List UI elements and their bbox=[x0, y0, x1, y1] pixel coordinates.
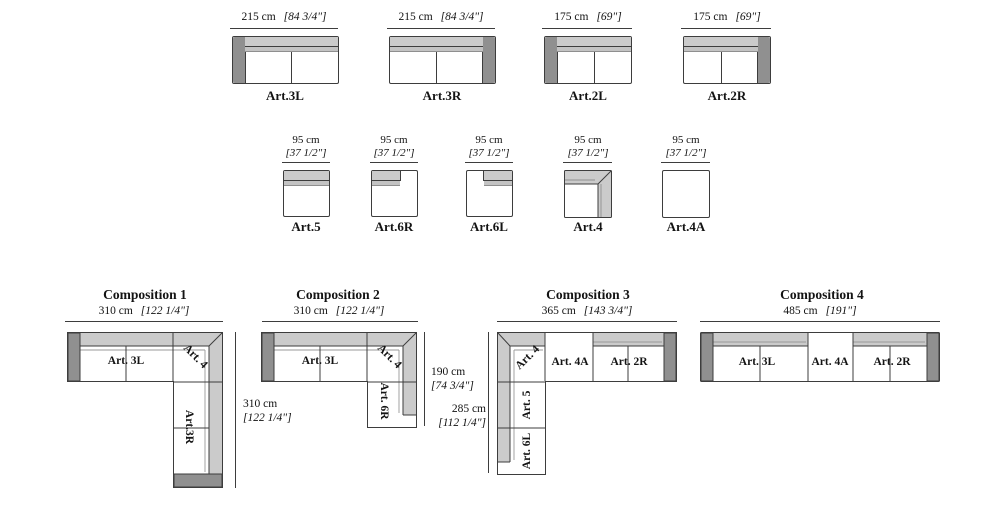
armrest-left bbox=[262, 333, 274, 381]
dim-cm: 310 cm bbox=[294, 305, 328, 317]
dim-line bbox=[681, 28, 771, 29]
composition3-diagram: Art. 4 Art. 4A Art. 2R Art. 5 Art. 6L bbox=[497, 332, 677, 475]
seat-divider bbox=[436, 52, 437, 83]
module-art5 bbox=[283, 170, 330, 217]
module-art4a bbox=[662, 170, 710, 218]
dim-in: [143 3/4"] bbox=[584, 305, 633, 317]
label-art4a: Art.4A bbox=[636, 219, 736, 235]
composition1-diagram: Art. 3L Art. 4 Art.3R bbox=[67, 332, 223, 488]
dim-art6r-in: [37 1/2"] bbox=[364, 147, 424, 159]
dim-line bbox=[65, 321, 223, 322]
backrest-band bbox=[245, 37, 338, 47]
dim-in: [69"] bbox=[596, 11, 621, 23]
label-art4a: Art. 4A bbox=[551, 356, 589, 368]
dim-art2l: 175 cm[69"] bbox=[528, 11, 648, 23]
backrest-strip bbox=[372, 181, 400, 186]
module-art4-corner bbox=[564, 170, 612, 218]
dim-line bbox=[700, 321, 940, 322]
armrest-right bbox=[482, 37, 495, 83]
dim-cm: 175 cm bbox=[554, 11, 588, 23]
label-art3l: Art. 3L bbox=[302, 355, 339, 367]
dim-art2r: 175 cm[69"] bbox=[667, 11, 787, 23]
dim-art3l: 215 cm[84 3/4"] bbox=[214, 11, 354, 23]
module-art3r bbox=[389, 36, 496, 84]
label-art6l: Art.6L bbox=[439, 219, 539, 235]
dim-line-vertical bbox=[488, 332, 489, 473]
band-stitch-line bbox=[565, 180, 601, 217]
composition3-title: Composition 3 bbox=[508, 287, 668, 303]
composition1-title: Composition 1 bbox=[65, 287, 225, 303]
label-art3l: Art. 3L bbox=[108, 355, 145, 367]
dim-line-vertical bbox=[235, 332, 236, 488]
dim-line bbox=[497, 321, 677, 322]
dim-in: [84 3/4"] bbox=[284, 11, 327, 23]
backrest-band bbox=[483, 171, 512, 181]
label-art4: Art.4 bbox=[538, 219, 638, 235]
dim-art4a-in: [37 1/2"] bbox=[656, 147, 716, 159]
dim-line bbox=[230, 28, 338, 29]
dim-cm: 310 cm bbox=[99, 305, 133, 317]
sofa-modules-dimension-sheet: 215 cm[84 3/4"] Art.3L 215 cm[84 3/4"] A… bbox=[0, 0, 990, 523]
module-art2l bbox=[544, 36, 632, 84]
label-art6r: Art.6R bbox=[344, 219, 444, 235]
backrest-strip bbox=[484, 181, 512, 186]
armrest-left bbox=[701, 333, 713, 381]
armrest-right bbox=[664, 333, 676, 381]
dim-art5-cm: 95 cm bbox=[276, 134, 336, 146]
dim-cm: 365 cm bbox=[542, 305, 576, 317]
dim-art4a-cm: 95 cm bbox=[656, 134, 716, 146]
label-art3r: Art.3R bbox=[183, 410, 195, 445]
label-art3l: Art.3L bbox=[235, 88, 335, 104]
label-art3r: Art.3R bbox=[392, 88, 492, 104]
band-inner-edge bbox=[565, 184, 598, 217]
composition2-dim-height-in: [74 3/4"] bbox=[431, 380, 474, 392]
label-art2r: Art. 2R bbox=[873, 356, 911, 368]
dim-line bbox=[542, 28, 632, 29]
dim-art4-in: [37 1/2"] bbox=[558, 147, 618, 159]
composition3-dim-width: 365 cm[143 3/4"] bbox=[507, 305, 667, 317]
composition4-dim-width: 485 cm[191"] bbox=[740, 305, 900, 317]
dim-line bbox=[282, 162, 330, 163]
dim-art6l-in: [37 1/2"] bbox=[459, 147, 519, 159]
backrest-band bbox=[390, 37, 483, 47]
dim-cm: 215 cm bbox=[241, 11, 275, 23]
backrest-band bbox=[684, 37, 758, 47]
label-art6l: Art. 6L bbox=[521, 432, 533, 469]
armrest-bottom bbox=[174, 474, 222, 487]
dim-art6l-cm: 95 cm bbox=[459, 134, 519, 146]
label-art2l: Art.2L bbox=[538, 88, 638, 104]
composition2-dim-width: 310 cm[122 1/4"] bbox=[259, 305, 419, 317]
module-art2r bbox=[683, 36, 771, 84]
module-art3l bbox=[232, 36, 339, 84]
composition4-diagram: Art. 3L Art. 4A Art. 2R bbox=[700, 332, 940, 382]
dim-line bbox=[262, 321, 418, 322]
dim-in: [84 3/4"] bbox=[441, 11, 484, 23]
composition3-dim-height-cm: 285 cm bbox=[410, 403, 486, 415]
seat-divider bbox=[594, 52, 595, 83]
label-art5: Art. 5 bbox=[521, 390, 533, 419]
armrest-left bbox=[68, 333, 80, 381]
label-art2r: Art. 2R bbox=[610, 356, 648, 368]
dim-art6r-cm: 95 cm bbox=[364, 134, 424, 146]
composition2-dim-height-cm: 190 cm bbox=[431, 366, 465, 378]
dim-line bbox=[387, 28, 495, 29]
dim-art5-in: [37 1/2"] bbox=[276, 147, 336, 159]
dim-cm: 175 cm bbox=[693, 11, 727, 23]
dim-line bbox=[661, 162, 710, 163]
backrest-strip bbox=[284, 181, 329, 186]
composition1-dim-width: 310 cm[122 1/4"] bbox=[64, 305, 224, 317]
composition4-title: Composition 4 bbox=[742, 287, 902, 303]
dim-cm: 485 cm bbox=[783, 305, 817, 317]
armrest-right bbox=[757, 37, 770, 83]
label-art4a: Art. 4A bbox=[811, 356, 849, 368]
dim-art4-cm: 95 cm bbox=[558, 134, 618, 146]
dim-in: [122 1/4"] bbox=[141, 305, 190, 317]
dim-in: [191"] bbox=[826, 305, 857, 317]
label-art3l: Art. 3L bbox=[739, 356, 776, 368]
label-art2r: Art.2R bbox=[677, 88, 777, 104]
dim-art3r: 215 cm[84 3/4"] bbox=[371, 11, 511, 23]
backrest-band bbox=[593, 333, 664, 346]
outline bbox=[262, 333, 417, 428]
seat-divider bbox=[721, 52, 722, 83]
backrest-band bbox=[284, 171, 329, 181]
dim-in: [122 1/4"] bbox=[336, 305, 385, 317]
backrest-band bbox=[372, 171, 401, 181]
label-art6r: Art. 6R bbox=[378, 382, 390, 420]
dim-line bbox=[465, 162, 513, 163]
module-art6r bbox=[371, 170, 418, 217]
composition2-title: Composition 2 bbox=[258, 287, 418, 303]
composition2-diagram: Art. 3L Art. 4 Art. 6R bbox=[261, 332, 418, 429]
dim-line bbox=[563, 162, 612, 163]
backrest-band bbox=[853, 333, 927, 346]
seat-divider bbox=[291, 52, 292, 83]
label-art5: Art.5 bbox=[256, 219, 356, 235]
module-art6l bbox=[466, 170, 513, 217]
dim-in: [69"] bbox=[735, 11, 760, 23]
backrest-band bbox=[557, 37, 631, 47]
dim-cm: 215 cm bbox=[398, 11, 432, 23]
composition3-dim-height-in: [112 1/4"] bbox=[410, 417, 486, 429]
backrest-band bbox=[713, 333, 808, 346]
dim-line bbox=[370, 162, 418, 163]
armrest-right bbox=[927, 333, 939, 381]
